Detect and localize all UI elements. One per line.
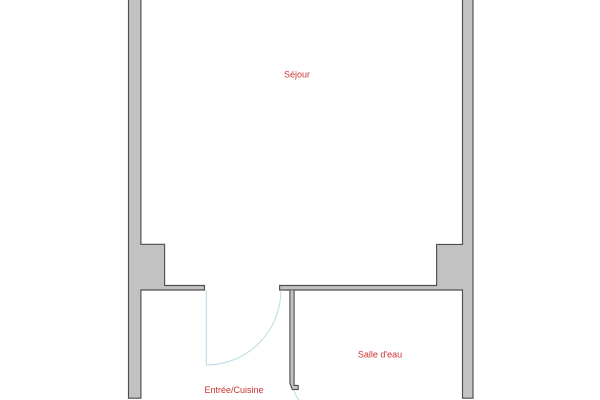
svg-text:Entrée/Cuisine: Entrée/Cuisine	[204, 385, 263, 395]
svg-text:Séjour: Séjour	[284, 70, 310, 80]
svg-text:Salle d'eau: Salle d'eau	[358, 349, 402, 359]
